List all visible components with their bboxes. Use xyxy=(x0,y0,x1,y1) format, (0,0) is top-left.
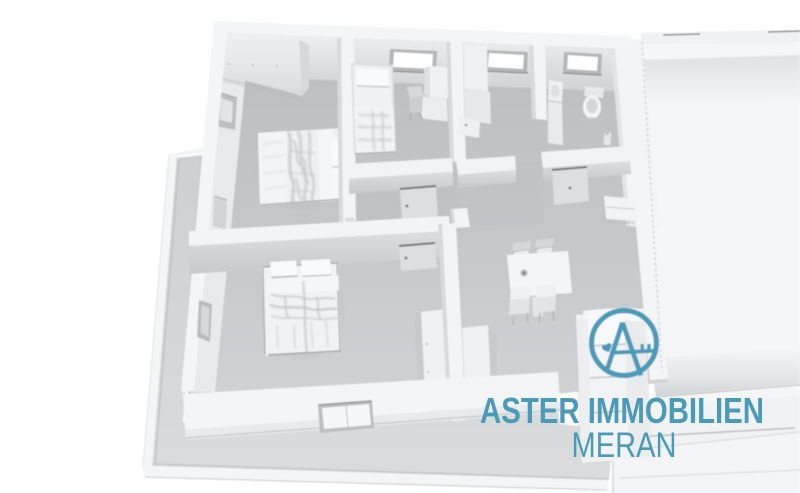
svg-text:MERAN: MERAN xyxy=(572,426,677,465)
svg-text:ASTER IMMOBILIEN: ASTER IMMOBILIEN xyxy=(480,390,764,431)
